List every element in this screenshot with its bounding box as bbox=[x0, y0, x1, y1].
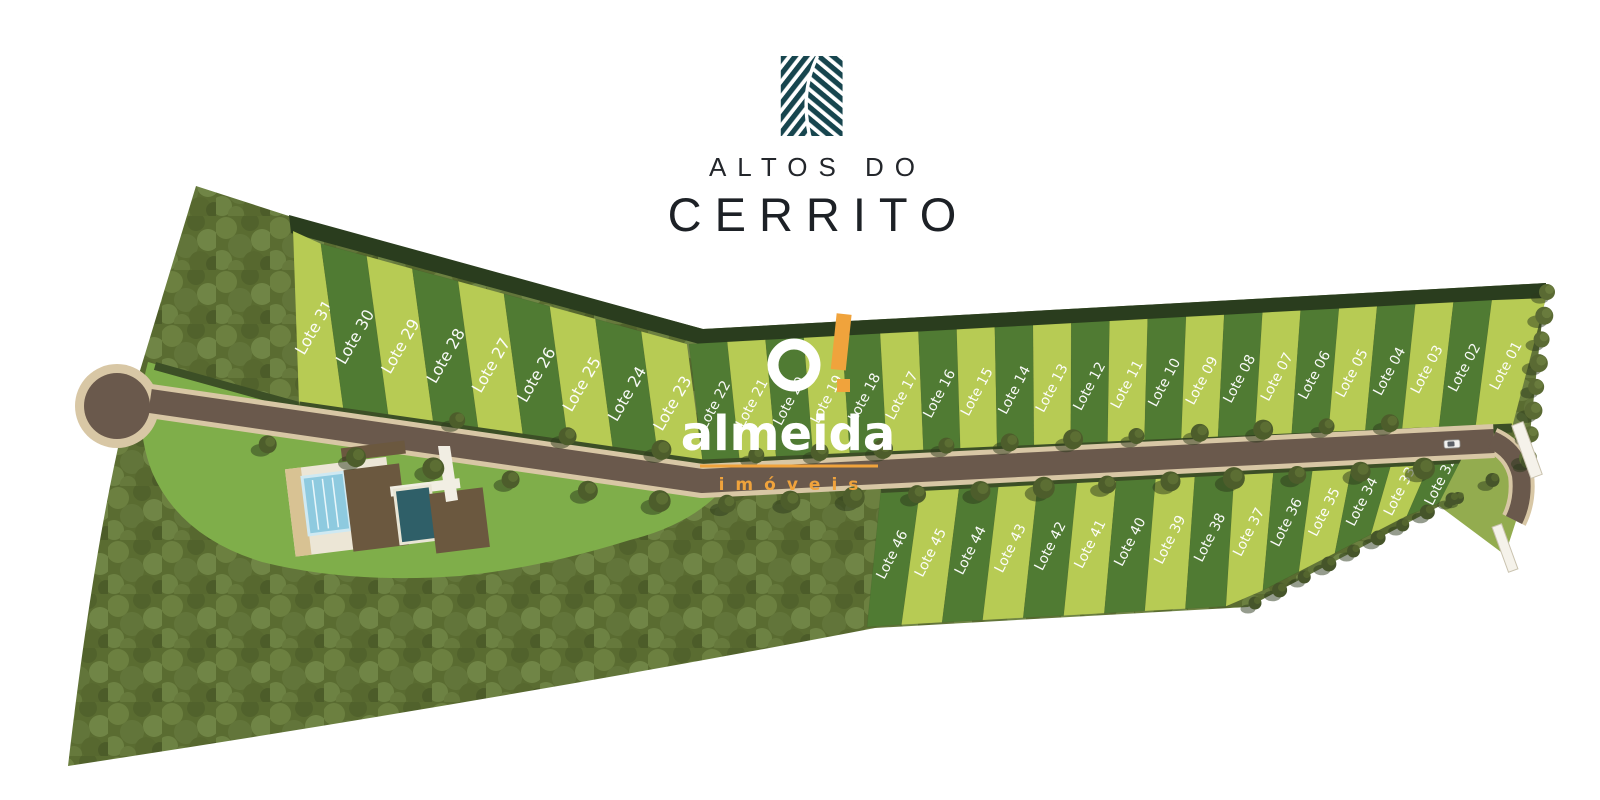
brand-name-top: ALTOS DO bbox=[655, 152, 970, 183]
watermark-dot bbox=[837, 379, 850, 392]
watermark-tagline: imóveis bbox=[719, 475, 870, 495]
swimming-pool bbox=[302, 472, 351, 535]
brand-header: ALTOS DO CERRITO bbox=[655, 56, 970, 242]
watermark-name: almeida bbox=[681, 406, 896, 462]
cul-de-sac bbox=[84, 373, 150, 439]
fern-leaf-icon bbox=[655, 56, 970, 136]
fern-leaf-logo-svg bbox=[781, 56, 843, 136]
site-plan-page: ALTOS DO CERRITO Lote 31Lote 30Lo bbox=[0, 0, 1600, 800]
car bbox=[1444, 440, 1460, 449]
brand-name-bottom: CERRITO bbox=[655, 187, 970, 242]
pavilion-roof bbox=[429, 487, 490, 553]
